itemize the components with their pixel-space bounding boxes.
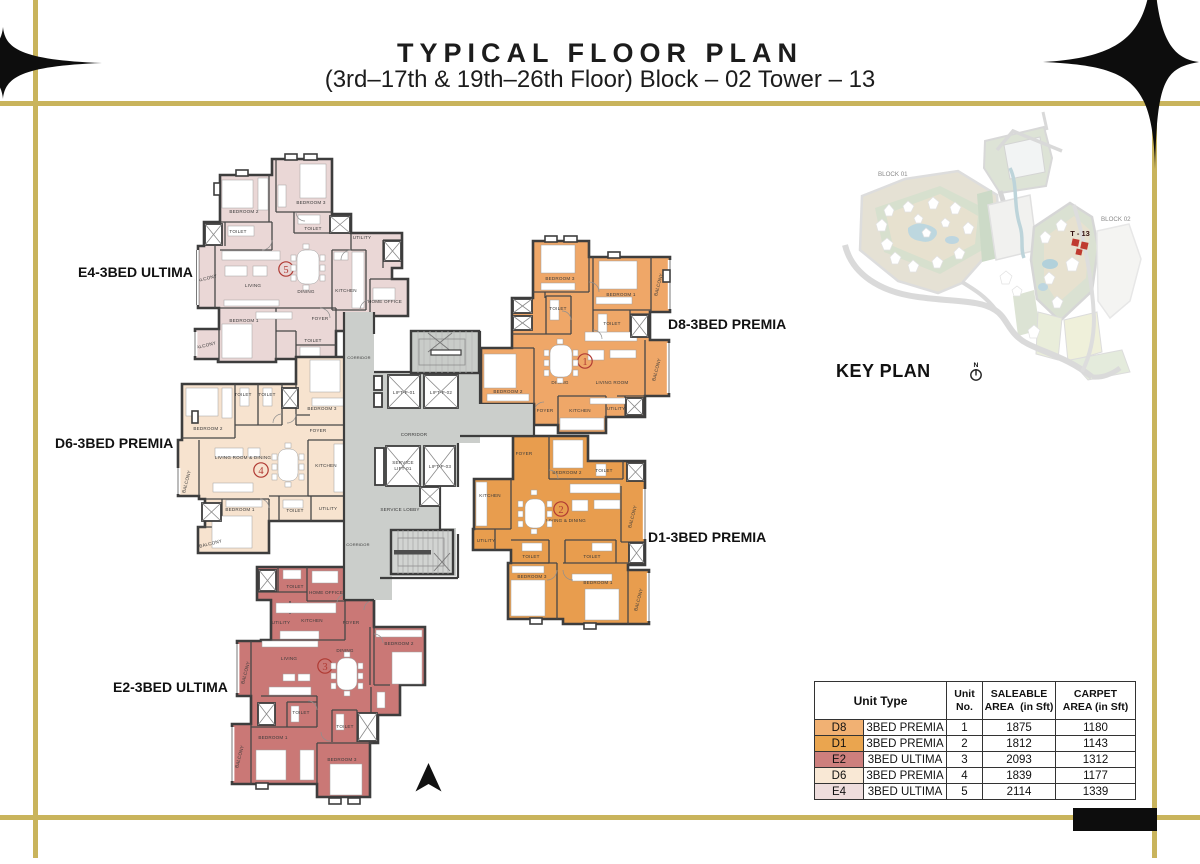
- svg-text:BLOCK 01: BLOCK 01: [878, 171, 908, 178]
- svg-text:BLOCK 02: BLOCK 02: [1101, 216, 1131, 223]
- svg-text:T - 13: T - 13: [1070, 229, 1090, 238]
- svg-text:N: N: [974, 362, 979, 369]
